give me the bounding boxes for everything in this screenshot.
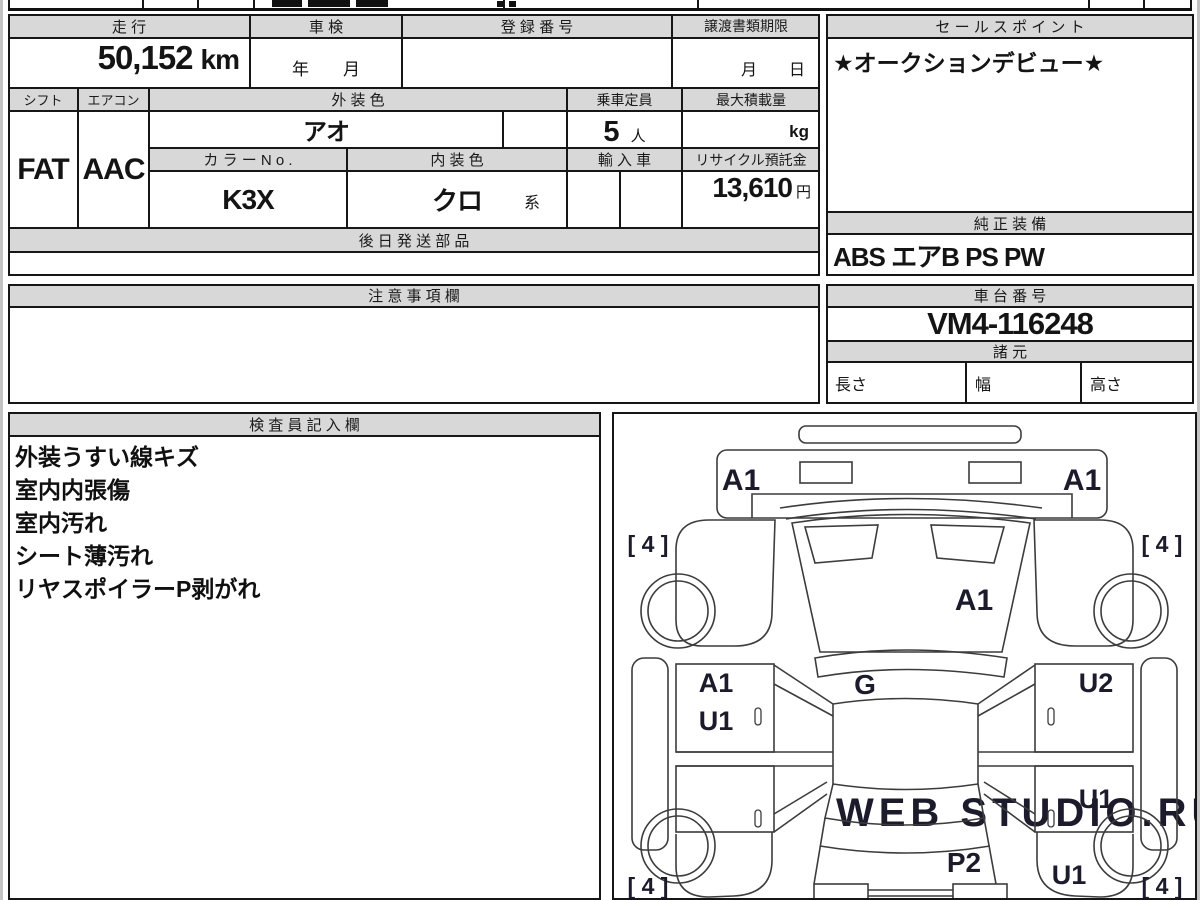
connector-bl2 [774,782,827,814]
auction-sheet: 走 行 車 検 登 録 番 号 譲渡書類期限 50,152 km 年 月 月 日… [0,0,1200,900]
front-bumper-tab-right [953,884,1007,898]
car-diagram-svg: WEB STUDIO.RU [614,414,1195,898]
capacity-unit: 人 [631,125,646,146]
recycle-deposit-value: 13,610 [712,172,792,204]
rear-gate [717,450,1107,518]
max-load-header: 最大積載量 [682,88,820,111]
window-vent-right [931,525,1004,563]
aircon-value: AAC [78,111,149,228]
inspector-note-line: 室内汚れ [15,507,594,540]
inspector-note-line: リヤスポイラーP剥がれ [15,573,594,606]
handle-left-lower [755,810,761,827]
max-load-unit: kg [789,122,809,142]
sales-point-value: ★オークションデビュー★ [826,38,1194,212]
damage-code-right-door-lower: U1 [1079,784,1114,814]
roof-panel [792,515,1030,653]
spec-height-cell: 高さ [1081,362,1194,404]
damage-code-right-door-upper: U2 [1079,668,1114,698]
damage-diagram: WEB STUDIO.RU [612,412,1197,900]
caution-header: 注 意 事 項 欄 [8,284,820,307]
exterior-color-header: 外 装 色 [149,88,567,111]
inspector-notes: 外装うすい線キズ 室内内張傷 室内汚れ シート薄汚れ リヤスポイラーP剥がれ [8,436,601,900]
later-parts-header: 後 日 発 送 部 品 [8,228,820,252]
spec-length-cell: 長さ [826,362,966,404]
recycle-deposit-value-cell: 13,610 円 [682,171,820,228]
import-car-header: 輸 入 車 [567,148,682,171]
damage-code-left-door-upper: A1 [699,668,734,698]
genuine-equipment-value: ABS エアB PS PW [826,234,1194,276]
damage-code-center: G [854,669,876,700]
capacity-value: 5 [603,116,618,148]
inspection-header: 車 検 [250,14,402,38]
mileage-value: 50,152 [98,39,193,77]
damage-code-front-right: U1 [1052,860,1087,890]
damage-code-rear-right: A1 [1063,464,1101,497]
connector-tl [774,665,833,704]
inspector-note-line: シート薄汚れ [15,540,594,573]
damage-code-left-door-lower: U1 [699,706,734,736]
wheel-front-left-inner [648,816,708,876]
damage-code-rear-left: A1 [722,464,760,497]
color-no-header: カ ラ ー N o . [149,148,347,171]
rear-window-top-curve [780,499,1042,509]
wheel-front-left [641,809,715,883]
interior-color-header: 内 装 色 [347,148,567,171]
capacity-value-cell: 5 人 [567,111,682,148]
fender-rear-right [1034,520,1133,646]
tire-depth-front-left: [ 4 ] [628,873,669,898]
shift-value: FAT [8,111,78,228]
inspector-note-line: 室内内張傷 [15,474,594,507]
genuine-equipment-header: 純 正 装 備 [826,212,1194,234]
recycle-deposit-unit: 円 [796,181,811,202]
mileage-header: 走 行 [8,14,250,38]
tire-depth-front-right: [ 4 ] [1142,873,1183,898]
inspection-value: 年 月 [250,38,402,88]
tire-depth-rear-right: [ 4 ] [1142,531,1183,557]
import-car-cell-b [620,171,682,228]
connector-bl [774,794,827,832]
window-vent-left [805,525,878,563]
handle-right-upper [1048,708,1054,725]
shift-header: シフト [8,88,78,111]
transfer-deadline-value: 月 日 [672,38,820,88]
cabin [833,699,978,790]
transfer-deadline-header: 譲渡書類期限 [672,14,820,38]
inspector-header: 検 査 員 記 入 欄 [8,412,601,436]
page-edge-left [0,0,3,900]
exterior-color-value: アオ [149,111,503,148]
rear-light-right [969,462,1021,483]
rear-bumper [799,426,1021,443]
recycle-deposit-header: リサイクル預託金 [682,148,820,171]
chassis-no-header: 車 台 番 号 [826,284,1194,307]
wheel-rear-right [1094,574,1168,648]
rear-light-left [800,462,852,483]
registration-value [402,38,672,88]
mileage-unit: km [201,44,239,76]
door-left-lower [676,766,774,832]
interior-color-value: クロ [432,181,482,218]
damage-code-hood: P2 [947,847,981,878]
specs-header: 諸 元 [826,341,1194,362]
damage-code-roof: A1 [955,584,993,617]
wheel-rear-left [641,574,715,648]
exterior-color-suffix-cell [503,111,567,148]
color-no-value: K3X [149,171,347,228]
mileage-value-cell: 50,152 km [8,38,250,88]
aircon-header: エアコン [78,88,149,111]
import-car-cell-a [567,171,620,228]
fender-rear-left [676,520,775,646]
caution-value [8,307,820,404]
front-bumper-tab-left [814,884,868,898]
capacity-header: 乗車定員 [567,88,682,111]
interior-color-value-cell: クロ 系 [347,171,567,228]
connector-tr [978,665,1035,704]
sales-point-header: セ ー ル ス ポ イ ン ト [826,14,1194,38]
tire-depth-rear-left: [ 4 ] [628,531,669,557]
chassis-no-value: VM4-116248 [826,307,1194,341]
spec-width-cell: 幅 [966,362,1081,404]
handle-left-upper [755,708,761,725]
connector-tr2 [978,684,1035,716]
connector-tl2 [774,684,833,716]
inspector-note-line: 外装うすい線キズ [15,441,594,474]
registration-header: 登 録 番 号 [402,14,672,38]
interior-color-suffix: 系 [524,189,540,213]
fender-front-left [676,832,772,897]
max-load-value-cell: kg [682,111,820,148]
roof-band [815,650,1007,677]
later-parts-value [8,252,820,276]
